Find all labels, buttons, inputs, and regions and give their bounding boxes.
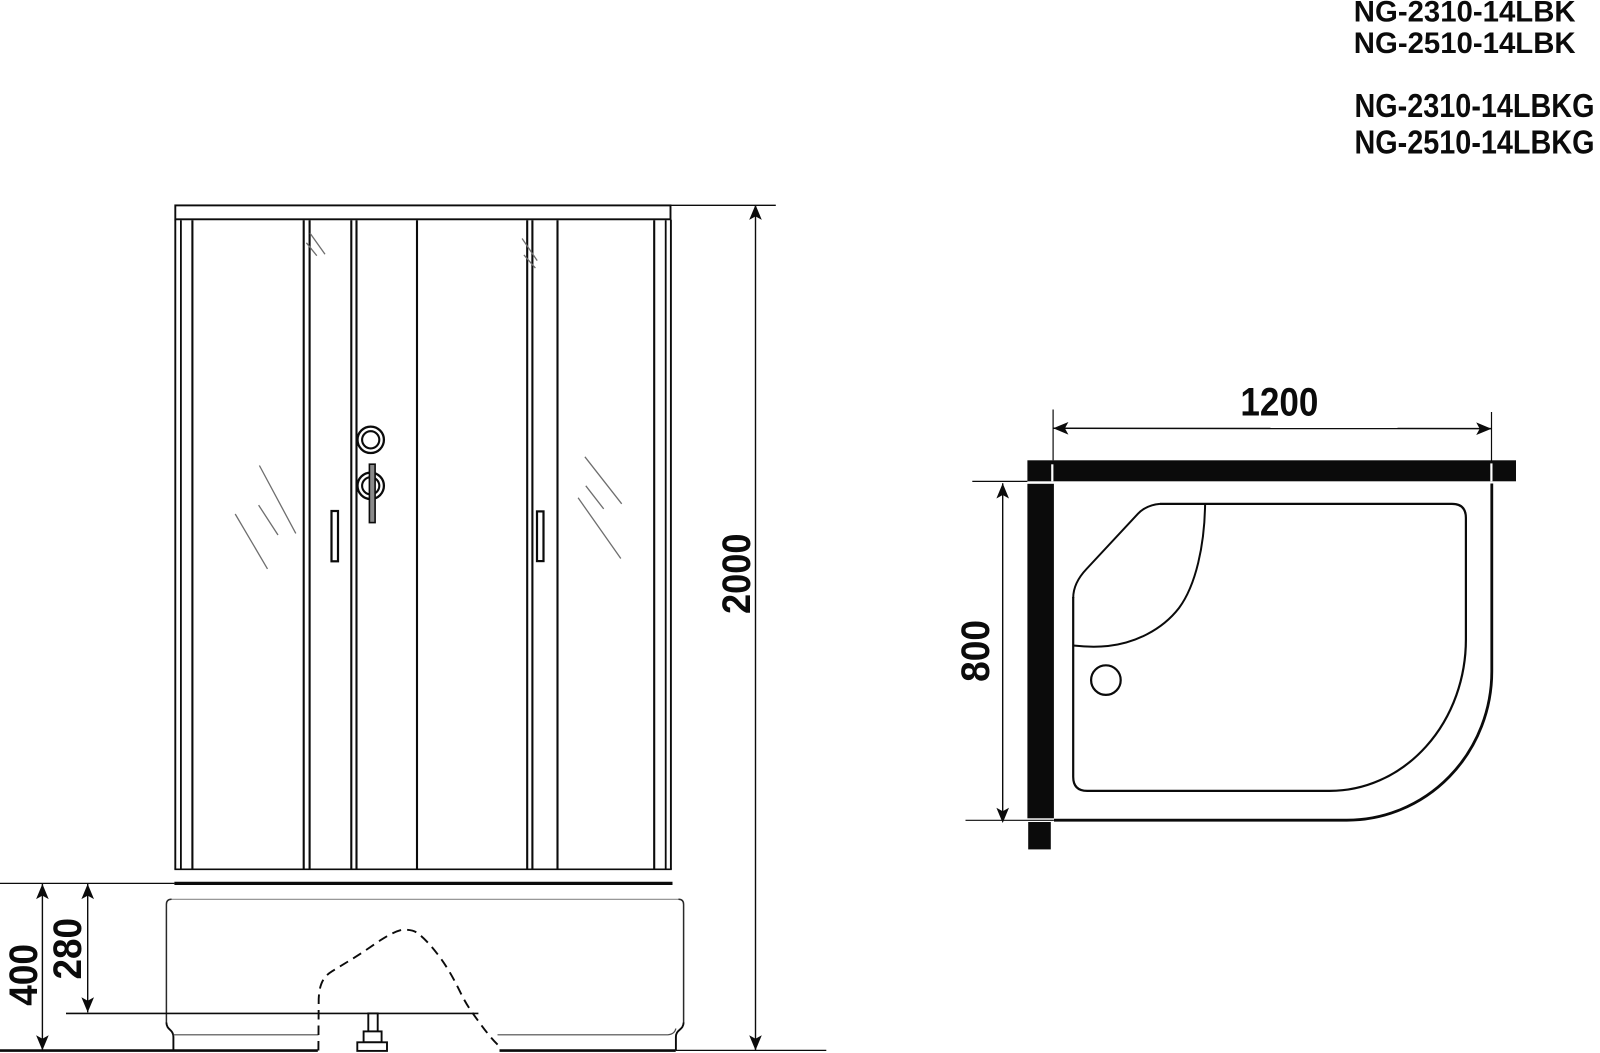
svg-text:2000: 2000: [715, 533, 759, 614]
svg-text:1200: 1200: [1240, 380, 1318, 424]
svg-text:400: 400: [2, 944, 46, 1006]
svg-text:NG-2310-14LBK: NG-2310-14LBK: [1354, 0, 1576, 28]
svg-text:800: 800: [954, 620, 998, 682]
svg-text:NG-2510-14LBK: NG-2510-14LBK: [1354, 27, 1576, 60]
svg-text:NG-2310-14LBKG: NG-2310-14LBKG: [1355, 88, 1595, 125]
svg-text:NG-2510-14LBKG: NG-2510-14LBKG: [1355, 125, 1595, 162]
svg-text:280: 280: [46, 918, 90, 980]
